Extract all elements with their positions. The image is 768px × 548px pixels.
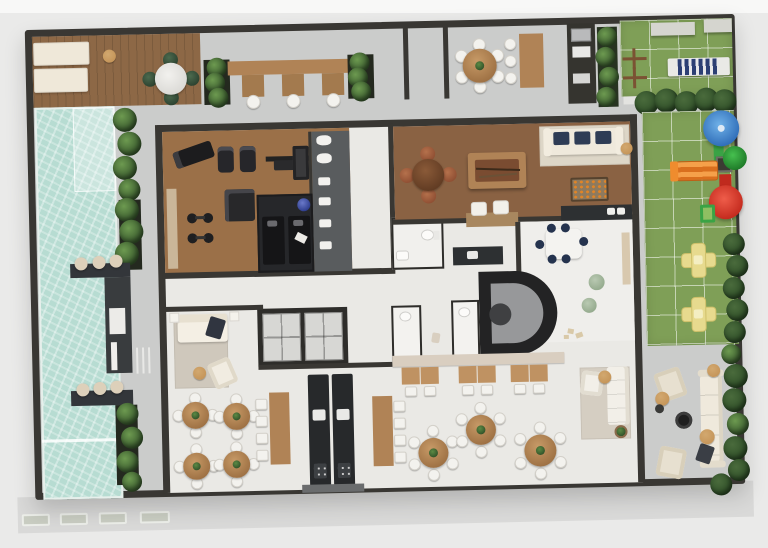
island-plinth <box>302 484 364 493</box>
sofa-arm <box>543 128 552 156</box>
long-table-chair <box>256 433 268 444</box>
island-sink <box>312 409 325 420</box>
bar-table <box>282 74 304 96</box>
long-table-chair <box>394 452 406 463</box>
sink <box>318 177 330 185</box>
lawn-bench <box>651 22 695 36</box>
pair-table <box>458 366 476 383</box>
side-table <box>169 313 179 323</box>
party-chair <box>462 385 474 395</box>
grill-sink <box>572 46 590 57</box>
party-chair <box>481 385 493 395</box>
pair-table <box>529 364 547 381</box>
long-table-chair <box>255 399 267 410</box>
pavement-bench <box>22 514 50 527</box>
elevator-cab <box>262 313 301 362</box>
grill-shelf <box>573 73 590 83</box>
play-ladder <box>700 204 715 222</box>
exercise-bike <box>239 146 256 172</box>
pair-table <box>477 365 495 382</box>
bar-table <box>242 75 264 97</box>
sofa-cushion <box>574 131 590 144</box>
sink <box>319 197 331 205</box>
towel-shelf <box>111 342 118 370</box>
sun-lounger <box>34 68 89 93</box>
hedge <box>726 299 748 321</box>
double-lounger-cushion <box>678 58 719 75</box>
long-table-chair <box>394 435 406 446</box>
hedge <box>726 255 748 277</box>
wicker-armchair <box>655 445 687 479</box>
locker-room-floor <box>311 131 352 272</box>
long-table <box>269 392 291 464</box>
sink <box>397 251 408 259</box>
tanning-ledge <box>73 107 117 192</box>
toy <box>564 335 569 339</box>
pouf <box>493 200 509 214</box>
fitness-frame <box>632 48 635 69</box>
toilet <box>317 153 332 163</box>
cup <box>617 208 625 215</box>
island-cooktop <box>338 463 351 478</box>
long-table-chair <box>394 418 406 429</box>
pavement-bench <box>140 511 170 524</box>
play-cross-center <box>694 309 703 318</box>
pair-table <box>510 365 528 382</box>
plant <box>724 364 749 389</box>
party-chair <box>533 383 545 393</box>
sofa-cushion <box>553 132 569 145</box>
play-slide-end <box>670 161 678 181</box>
island-sink <box>336 409 349 420</box>
long-table-chair <box>256 450 268 461</box>
long-table <box>372 396 394 466</box>
foosball-table <box>570 177 609 202</box>
dumbbell-bar <box>195 236 205 239</box>
plant <box>728 459 750 481</box>
long-table-chair <box>256 416 268 427</box>
party-chair <box>405 386 417 396</box>
island-cooktop <box>314 463 327 478</box>
cup <box>607 208 615 215</box>
bed-pillow <box>267 220 277 226</box>
pavement-bench <box>60 513 88 526</box>
exercise-bike <box>217 146 234 172</box>
sink <box>320 241 332 249</box>
elevator-cab <box>304 312 343 361</box>
fitness-frame <box>633 67 636 88</box>
side-table <box>229 311 239 321</box>
party-chair <box>514 384 526 394</box>
play-slide <box>676 160 718 181</box>
building-plan <box>0 0 768 548</box>
play-cross-center <box>694 255 703 264</box>
sink <box>467 251 478 259</box>
hedge <box>723 233 745 255</box>
palm-plant <box>723 146 748 171</box>
pouf <box>471 202 487 216</box>
toilet-tank <box>433 231 439 240</box>
bed-pillow <box>293 220 303 226</box>
toy <box>567 328 574 334</box>
sofa-cushion <box>595 131 611 144</box>
sun-lounger <box>33 42 90 66</box>
gym-shelf <box>166 189 178 269</box>
lawn-bench <box>704 19 732 33</box>
multi-gym-machine <box>224 189 255 222</box>
plant <box>727 413 749 435</box>
squat-rack <box>292 146 309 180</box>
hedge <box>724 321 746 343</box>
party-chair <box>424 386 436 396</box>
high-table <box>519 33 544 88</box>
dumbbell-bar <box>195 216 205 219</box>
hedge <box>723 277 745 299</box>
kids-shelf <box>622 232 631 284</box>
floor-plan-render <box>0 0 768 548</box>
toilet <box>316 135 331 145</box>
lobby-stool <box>431 332 440 343</box>
pavement-bench <box>99 512 127 525</box>
grill-appliance <box>571 28 591 41</box>
long-table-chair <box>393 401 405 412</box>
pair-table <box>421 367 439 384</box>
bar-table <box>322 73 344 95</box>
towel-shelf <box>109 308 126 334</box>
pair-table <box>402 367 420 384</box>
sink <box>319 219 331 227</box>
